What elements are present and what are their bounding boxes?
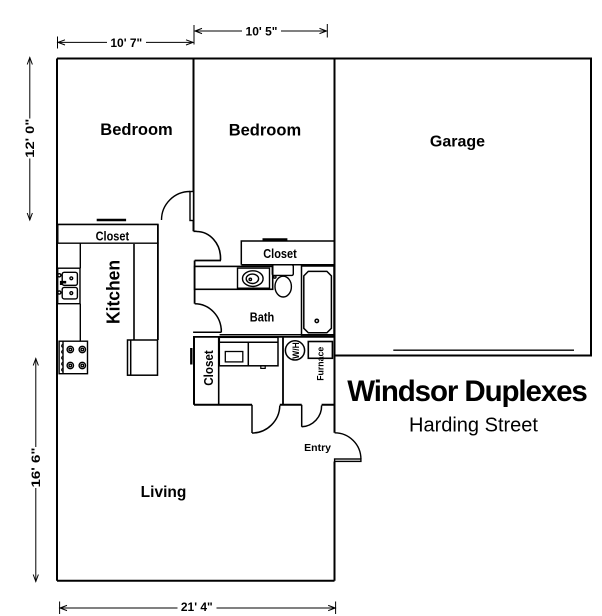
svg-text:Living: Living xyxy=(141,484,187,501)
svg-text:Bath: Bath xyxy=(250,309,275,324)
svg-text:10' 5": 10' 5" xyxy=(246,24,278,38)
svg-text:Entry: Entry xyxy=(304,442,331,454)
svg-text:Furnace: Furnace xyxy=(315,347,326,381)
svg-text:10' 7": 10' 7" xyxy=(110,36,142,50)
svg-text:Closet: Closet xyxy=(201,350,216,386)
svg-text:21' 4": 21' 4" xyxy=(181,600,213,614)
svg-text:Kitchen: Kitchen xyxy=(104,260,124,324)
svg-text:Harding Street: Harding Street xyxy=(409,415,538,437)
svg-text:Closet: Closet xyxy=(96,229,130,243)
svg-text:Garage: Garage xyxy=(430,134,485,151)
svg-text:12' 0": 12' 0" xyxy=(23,119,37,158)
svg-text:Bedroom: Bedroom xyxy=(229,122,301,140)
svg-text:W/H: W/H xyxy=(291,342,301,359)
svg-text:Closet: Closet xyxy=(263,247,297,261)
svg-text:Bedroom: Bedroom xyxy=(100,121,172,139)
svg-text:Windsor Duplexes: Windsor Duplexes xyxy=(347,375,587,408)
svg-text:16' 6": 16' 6" xyxy=(29,448,43,488)
